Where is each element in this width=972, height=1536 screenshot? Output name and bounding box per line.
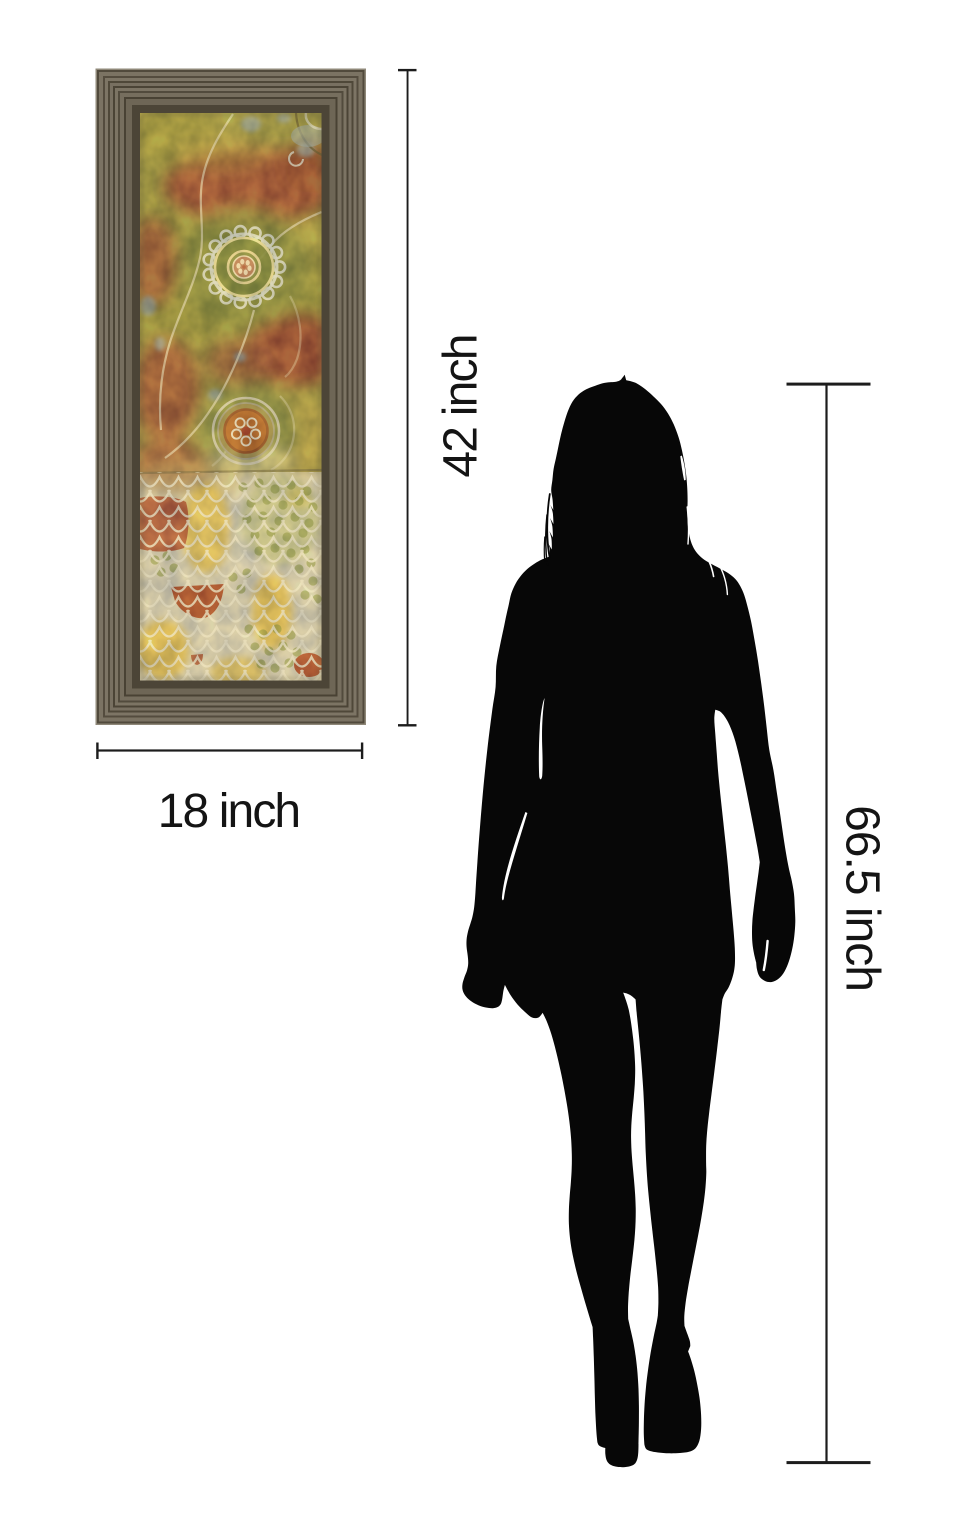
svg-text:18 inch: 18 inch: [158, 785, 299, 838]
svg-text:66.5 inch: 66.5 inch: [836, 805, 889, 991]
svg-text:42 inch: 42 inch: [435, 335, 488, 477]
